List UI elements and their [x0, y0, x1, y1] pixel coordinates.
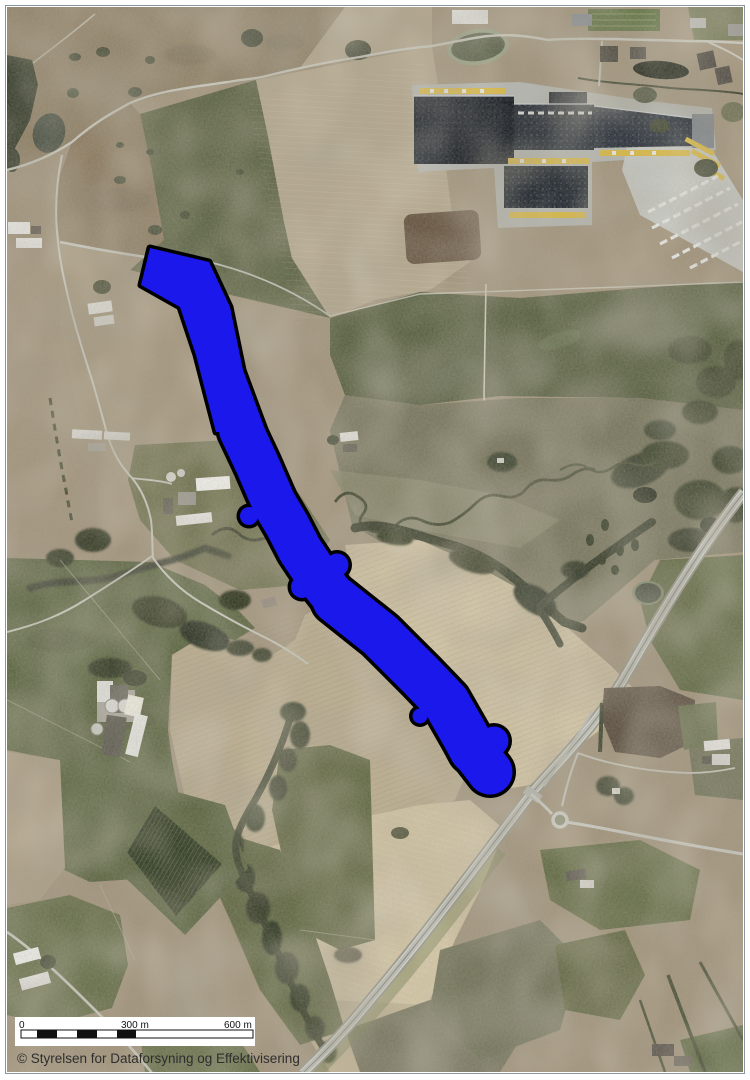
svg-text:© Styrelsen for Dataforsyning: © Styrelsen for Dataforsyning og Effekti… — [17, 1051, 300, 1066]
svg-text:600 m: 600 m — [224, 1020, 252, 1031]
svg-text:300 m: 300 m — [121, 1020, 149, 1031]
svg-text:0: 0 — [19, 1020, 25, 1031]
